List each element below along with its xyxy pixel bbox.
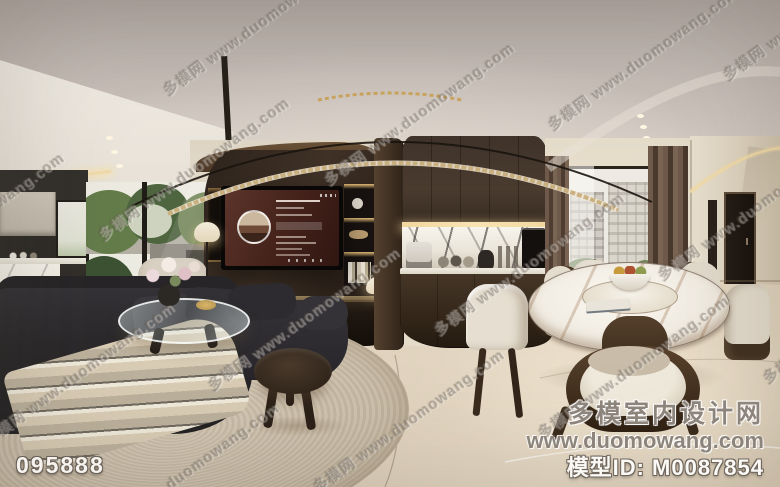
render-id: 095888 bbox=[16, 452, 105, 479]
shelf-light bbox=[344, 252, 374, 257]
coffee-machine bbox=[406, 242, 432, 270]
shelf-decor-orb bbox=[352, 198, 363, 209]
shelf-light bbox=[344, 184, 374, 189]
tv-status-dots bbox=[320, 194, 336, 197]
shelf-books bbox=[348, 262, 371, 283]
tv-album-art bbox=[237, 210, 271, 244]
kitchen-upper-cabinets bbox=[402, 136, 548, 226]
brand-site-name: 多模室内设计网 bbox=[526, 400, 764, 428]
spice-bottles bbox=[498, 246, 520, 270]
shelf-light bbox=[344, 218, 374, 223]
brand-block: 多模室内设计网 www.duomowang.com 模型ID: M0087854 bbox=[526, 400, 764, 481]
left-kitchen-upper-cabinets bbox=[0, 192, 56, 236]
garden-blossom-tree bbox=[128, 204, 172, 238]
door-handle bbox=[746, 238, 748, 245]
brand-site-url: www.duomowang.com bbox=[526, 429, 764, 454]
dining-chair-side bbox=[724, 284, 770, 360]
sofa-bolster bbox=[298, 296, 348, 330]
hall-corner-line bbox=[690, 140, 692, 282]
kettle bbox=[478, 250, 494, 270]
downlight bbox=[640, 125, 647, 129]
downlight bbox=[111, 150, 118, 154]
downlight bbox=[106, 136, 113, 140]
built-in-appliance bbox=[522, 228, 546, 270]
brand-model-id: 模型ID: M0087854 bbox=[526, 456, 764, 481]
coffee-table-glass-top bbox=[118, 298, 250, 344]
floor-lamp-shade bbox=[194, 222, 220, 242]
gold-tray bbox=[196, 300, 216, 310]
tv-menu-lines bbox=[276, 200, 334, 258]
tv-control-dots bbox=[288, 259, 328, 262]
panorama-render: 多模网 www.duomowang.com 多模网 www.duomowang.… bbox=[0, 0, 780, 487]
crescent-chair-cushion bbox=[588, 346, 670, 376]
dining-chair-front bbox=[466, 284, 528, 350]
downlight bbox=[116, 164, 123, 168]
flower-bouquet bbox=[140, 254, 204, 290]
shelf-decor-sculpture bbox=[349, 230, 368, 239]
stool-top bbox=[254, 348, 332, 394]
left-kitchen-window-blinds bbox=[56, 200, 88, 258]
downlight bbox=[637, 114, 644, 118]
hall-door bbox=[724, 192, 756, 284]
